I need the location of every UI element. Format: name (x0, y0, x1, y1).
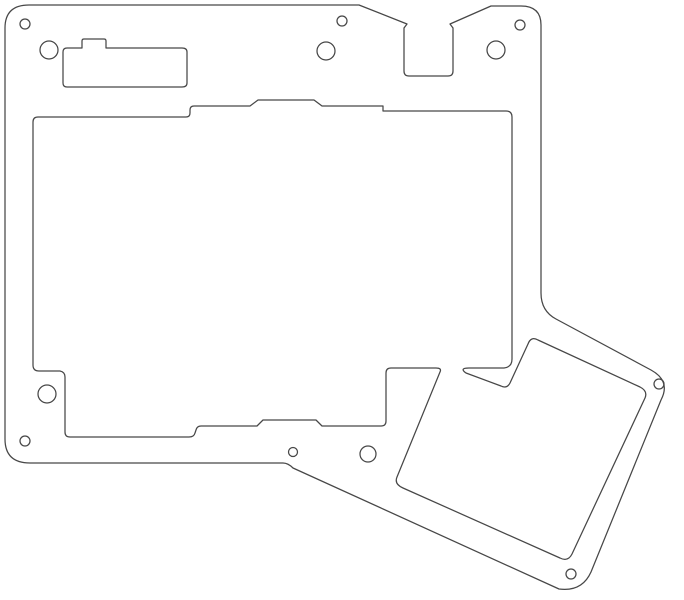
mounting-hole-top-mid-large (317, 42, 335, 60)
mounting-hole-top-right-small (515, 20, 525, 30)
mounting-hole-bottom-mid-small (289, 448, 298, 457)
mounting-hole-top-left-large (40, 41, 58, 59)
mounting-hole-extension-right (654, 379, 664, 389)
outer-plate-outline (5, 5, 664, 589)
main-compound-cutout (33, 100, 646, 559)
mounting-hole-top-right-large (487, 41, 505, 59)
mounting-hole-top-left-small (20, 19, 30, 29)
mounting-hole-bottom-mid-large (360, 446, 376, 462)
mounting-hole-bottom-left-small (20, 436, 30, 446)
drawing-canvas (0, 0, 684, 600)
mounting-hole-top-mid-small (337, 16, 347, 26)
connector-slot-cutout (63, 39, 187, 87)
mounting-hole-bottom-left-large (38, 385, 56, 403)
cad-drawing (0, 0, 684, 600)
mounting-hole-extension-bottom (566, 569, 576, 579)
